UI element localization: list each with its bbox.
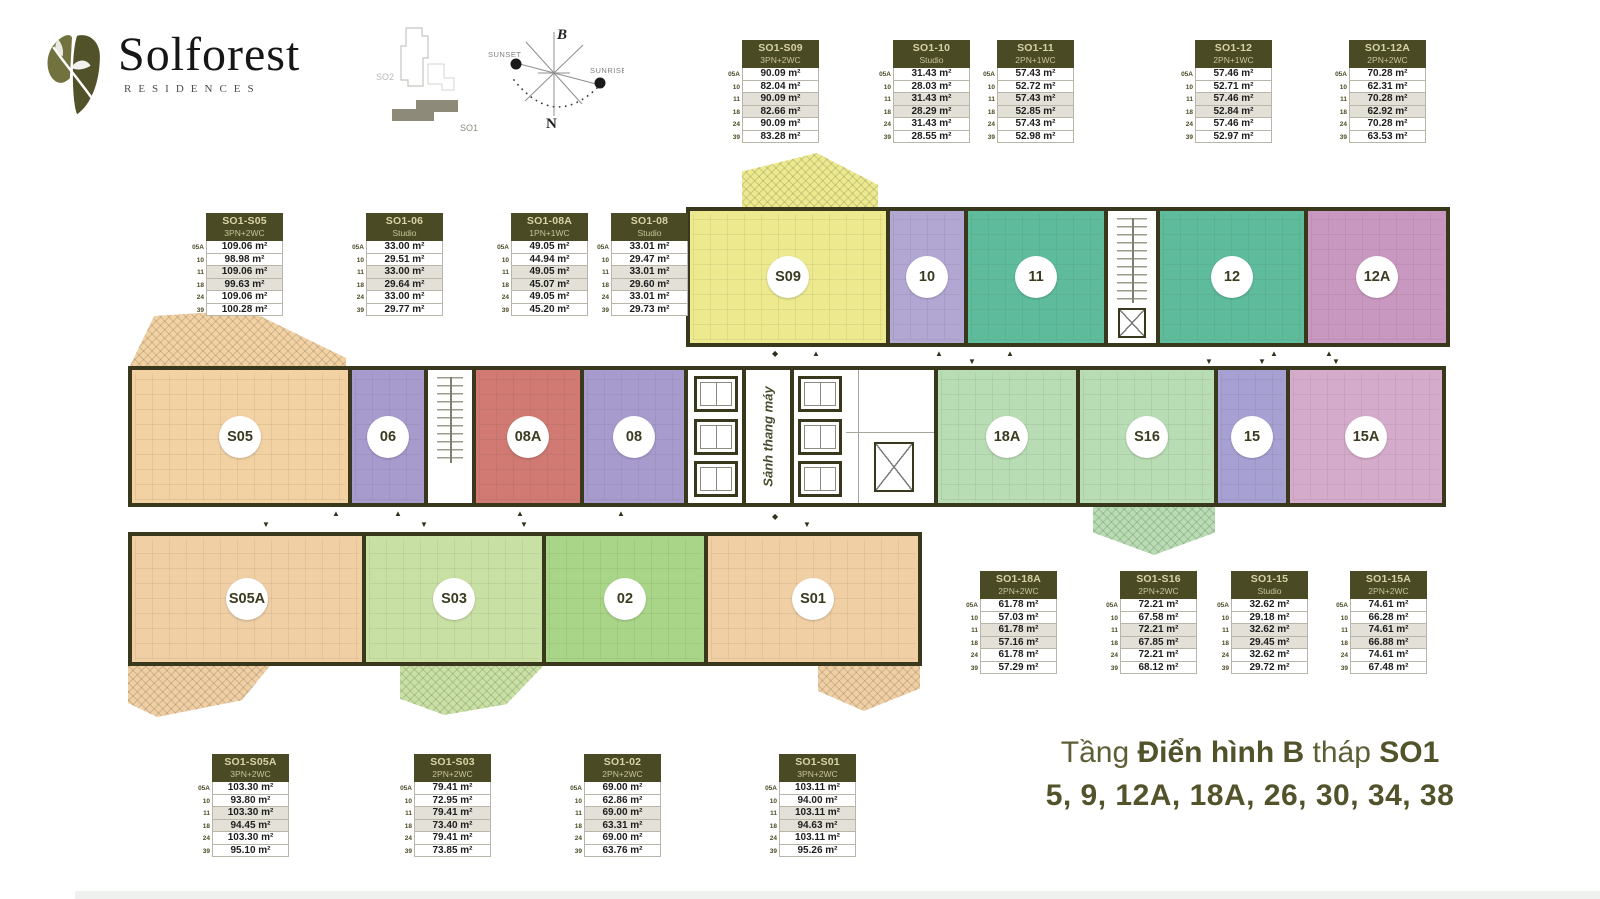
area-value: 74.61 m² [1350, 649, 1427, 662]
unit-s03: S03 [362, 536, 542, 662]
area-value: 93.80 m² [212, 795, 289, 808]
area-table-so1-s03: SO1-S032PN+2WC05A79.41 m²1072.95 m²1179.… [399, 754, 491, 857]
floor-label: 24 [496, 291, 511, 304]
table-row: 1829.60 m² [596, 279, 688, 292]
unit-label-08: 08 [613, 416, 655, 458]
table-header: SO1-S05A3PN+2WC [212, 754, 289, 782]
table-row: 1029.47 m² [596, 254, 688, 267]
area-value: 31.43 m² [893, 93, 970, 106]
area-value: 69.00 m² [584, 807, 661, 820]
area-value: 32.62 m² [1231, 599, 1308, 612]
area-value: 62.31 m² [1349, 81, 1426, 94]
table-row: 2469.00 m² [569, 832, 661, 845]
area-value: 52.85 m² [997, 106, 1074, 119]
table-header: SO1-10Studio [893, 40, 970, 68]
floor-label: 11 [569, 807, 584, 820]
unit-label-s09: S09 [767, 256, 809, 298]
table-row: 24103.30 m² [197, 832, 289, 845]
area-value: 63.53 m² [1349, 131, 1426, 144]
compass-south-label: N [546, 116, 557, 132]
table-row: 2479.41 m² [399, 832, 491, 845]
floor-label: 11 [596, 266, 611, 279]
table-unit-type: 2PN+2WC [584, 769, 661, 779]
table-unit-code: SO1-06 [366, 215, 443, 227]
floor-label: 39 [764, 845, 779, 858]
unit-12a: 12A [1304, 211, 1446, 343]
table-row: 05A33.00 m² [351, 241, 443, 254]
table-row: 24103.11 m² [764, 832, 856, 845]
table-row: 3952.98 m² [982, 131, 1074, 144]
unit-label-12: 12 [1211, 256, 1253, 298]
area-value: 67.48 m² [1350, 662, 1427, 675]
floor-label: 10 [569, 795, 584, 808]
floor-label: 11 [1105, 624, 1120, 637]
floor-label: 18 [1180, 106, 1195, 119]
table-row: 05A57.46 m² [1180, 68, 1272, 81]
area-value: 82.04 m² [742, 81, 819, 94]
floor-label: 39 [191, 304, 206, 317]
area-value: 90.09 m² [742, 118, 819, 131]
table-row: 05A74.61 m² [1335, 599, 1427, 612]
table-row: 05A32.62 m² [1216, 599, 1308, 612]
table-row: 1899.63 m² [191, 279, 283, 292]
floor-label: 39 [727, 131, 742, 144]
table-unit-type: 2PN+2WC [414, 769, 491, 779]
floor-label: 39 [351, 304, 366, 317]
site-map-so2-label: SO2 [376, 72, 394, 82]
unit-label-10: 10 [906, 256, 948, 298]
table-row: 1829.64 m² [351, 279, 443, 292]
floor-label: 24 [569, 832, 584, 845]
unit-12: 12 [1160, 211, 1304, 343]
area-value: 67.58 m² [1120, 612, 1197, 625]
solforest-logo-icon [42, 30, 104, 120]
area-table-so1-15: SO1-15Studio05A32.62 m²1029.18 m²1132.62… [1216, 571, 1308, 674]
table-row: 1133.01 m² [596, 266, 688, 279]
table-unit-type: 3PN+2WC [206, 228, 283, 238]
area-value: 62.86 m² [584, 795, 661, 808]
area-value: 69.00 m² [584, 832, 661, 845]
area-value: 73.85 m² [414, 845, 491, 858]
floor-label: 24 [878, 118, 893, 131]
table-row: 1873.40 m² [399, 820, 491, 833]
area-table-so1-08a: SO1-08A1PN+1WC05A49.05 m²1044.94 m²1149.… [496, 213, 588, 316]
area-value: 32.62 m² [1231, 624, 1308, 637]
area-value: 29.60 m² [611, 279, 688, 292]
entrance-arrow-up-icon: ▲ [394, 510, 402, 518]
floor-label: 10 [1180, 81, 1195, 94]
area-value: 52.84 m² [1195, 106, 1272, 119]
table-row: 1029.51 m² [351, 254, 443, 267]
unit-label-s05: S05 [219, 416, 261, 458]
table-row: 3963.76 m² [569, 845, 661, 858]
table-row: 11103.30 m² [197, 807, 289, 820]
table-row: 1852.85 m² [982, 106, 1074, 119]
floor-label: 10 [351, 254, 366, 267]
area-table-so1-s05: SO1-S053PN+2WC05A109.06 m²1098.98 m²1110… [191, 213, 283, 316]
area-value: 32.62 m² [1231, 649, 1308, 662]
area-value: 72.21 m² [1120, 649, 1197, 662]
table-unit-type: 2PN+1WC [997, 55, 1074, 65]
unit-label-02: 02 [604, 578, 646, 620]
table-row: 3983.28 m² [727, 131, 819, 144]
area-value: 103.30 m² [212, 832, 289, 845]
table-row: 3973.85 m² [399, 845, 491, 858]
table-row: 3963.53 m² [1334, 131, 1426, 144]
table-row: 2449.05 m² [496, 291, 588, 304]
lobby-label: Sảnh thang máy [761, 386, 776, 486]
table-unit-code: SO1-08A [511, 215, 588, 227]
entrance-arrow-up-icon: ▲ [812, 350, 820, 358]
floor-label: 18 [982, 106, 997, 119]
table-row: 24109.06 m² [191, 291, 283, 304]
table-row: 1131.43 m² [878, 93, 970, 106]
area-value: 70.28 m² [1349, 68, 1426, 81]
table-unit-code: SO1-15A [1350, 573, 1427, 585]
table-row: 1845.07 m² [496, 279, 588, 292]
floor-label: 18 [878, 106, 893, 119]
unit-label-s05a: S05A [226, 578, 268, 620]
floor-label: 05A [596, 241, 611, 254]
floor-label: 05A [965, 599, 980, 612]
floor-label: 39 [1180, 131, 1195, 144]
table-header: SO1-022PN+2WC [584, 754, 661, 782]
footer-word-tang: Tầng [1061, 736, 1129, 769]
compass-sunset-label: SUNSET [488, 50, 521, 59]
compass-arc [514, 80, 598, 107]
floor-label: 11 [1180, 93, 1195, 106]
table-row: 2433.01 m² [596, 291, 688, 304]
unit-15a: 15A [1286, 370, 1442, 503]
table-row: 3929.77 m² [351, 304, 443, 317]
floor-label: 11 [727, 93, 742, 106]
area-value: 98.98 m² [206, 254, 283, 267]
area-value: 69.00 m² [584, 782, 661, 795]
table-row: 2474.61 m² [1335, 649, 1427, 662]
area-value: 29.18 m² [1231, 612, 1308, 625]
table-row: 1062.31 m² [1334, 81, 1426, 94]
table-unit-code: SO1-S05 [206, 215, 283, 227]
footer-caption: Tầng Điển hình B tháp SO1 5, 9, 12A, 18A… [1030, 736, 1470, 813]
entrance-arrow-down-icon: ▼ [420, 521, 428, 529]
area-value: 52.71 m² [1195, 81, 1272, 94]
elevator-lobby: Sảnh thang máy [742, 370, 794, 503]
table-row: 1133.00 m² [351, 266, 443, 279]
unit-10: 10 [886, 211, 964, 343]
table-row: 1082.04 m² [727, 81, 819, 94]
area-value: 52.97 m² [1195, 131, 1272, 144]
table-row: 11109.06 m² [191, 266, 283, 279]
table-unit-type: Studio [1231, 586, 1308, 596]
balcony-s05a [128, 661, 274, 717]
area-value: 103.30 m² [212, 782, 289, 795]
floor-label: 24 [982, 118, 997, 131]
area-value: 103.11 m² [779, 782, 856, 795]
unit-s05: S05 [132, 370, 348, 503]
area-value: 103.30 m² [212, 807, 289, 820]
table-header: SO1-S032PN+2WC [414, 754, 491, 782]
floor-label: 11 [191, 266, 206, 279]
lobby-passage-icon: ◆ [772, 350, 778, 358]
area-value: 57.43 m² [997, 118, 1074, 131]
table-row: 1882.66 m² [727, 106, 819, 119]
unit-06: 06 [348, 370, 424, 503]
table-row: 1863.31 m² [569, 820, 661, 833]
table-header: SO1-08A1PN+1WC [511, 213, 588, 241]
balcony-s09 [742, 153, 878, 211]
table-row: 1052.71 m² [1180, 81, 1272, 94]
table-row: 3929.73 m² [596, 304, 688, 317]
floor-label: 11 [399, 807, 414, 820]
unit-s16: S16 [1076, 370, 1214, 503]
table-unit-code: SO1-S16 [1120, 573, 1197, 585]
unit-label-18a: 18A [986, 416, 1028, 458]
floor-label: 11 [1334, 93, 1349, 106]
footer-word-so1: SO1 [1379, 736, 1439, 769]
elevator-icon [798, 376, 842, 412]
table-header: SO1-15A2PN+2WC [1350, 571, 1427, 599]
floor-label: 05A [1216, 599, 1231, 612]
area-value: 49.05 m² [511, 291, 588, 304]
floor-label: 24 [596, 291, 611, 304]
area-table-so1-10: SO1-10Studio05A31.43 m²1028.03 m²1131.43… [878, 40, 970, 143]
entrance-arrow-down-icon: ▼ [1332, 358, 1340, 366]
area-table-so1-s01: SO1-S013PN+2WC05A103.11 m²1094.00 m²1110… [764, 754, 856, 857]
table-row: 2461.78 m² [965, 649, 1057, 662]
area-value: 57.03 m² [980, 612, 1057, 625]
table-row: 2472.21 m² [1105, 649, 1197, 662]
table-row: 3968.12 m² [1105, 662, 1197, 675]
elevator-bank-left [694, 376, 738, 497]
floor-label: 39 [399, 845, 414, 858]
table-unit-code: SO1-S09 [742, 42, 819, 54]
footer-word-typeb: Điển hình B [1137, 736, 1304, 769]
table-header: SO1-122PN+1WC [1195, 40, 1272, 68]
sunset-dot [511, 59, 522, 70]
footer-line-1: Tầng Điển hình B tháp SO1 [1030, 736, 1470, 770]
floor-label: 39 [1334, 131, 1349, 144]
middle-wing: S05 06 08A 08 Sảnh thang máy 18A S16 1 [128, 366, 1446, 507]
floor-label: 24 [197, 832, 212, 845]
table-header: SO1-S093PN+2WC [742, 40, 819, 68]
area-value: 29.45 m² [1231, 637, 1308, 650]
compass-north-label: B [556, 27, 567, 43]
area-value: 82.66 m² [742, 106, 819, 119]
area-value: 73.40 m² [414, 820, 491, 833]
stairwell-middle [424, 370, 476, 503]
table-unit-code: SO1-11 [997, 42, 1074, 54]
table-row: 05A90.09 m² [727, 68, 819, 81]
table-row: 1093.80 m² [197, 795, 289, 808]
floor-label: 39 [496, 304, 511, 317]
floor-label: 05A [496, 241, 511, 254]
area-value: 33.01 m² [611, 291, 688, 304]
area-value: 95.10 m² [212, 845, 289, 858]
area-value: 68.12 m² [1120, 662, 1197, 675]
entrance-arrow-down-icon: ▼ [1205, 358, 1213, 366]
floor-label: 18 [569, 820, 584, 833]
brand-block: Solforest RESIDENCES [42, 30, 300, 120]
area-value: 74.61 m² [1350, 599, 1427, 612]
unit-s01: S01 [704, 536, 918, 662]
floor-label: 11 [878, 93, 893, 106]
area-table-so1-s05a: SO1-S05A3PN+2WC05A103.30 m²1093.80 m²111… [197, 754, 289, 857]
table-unit-type: Studio [611, 228, 688, 238]
unit-label-11: 11 [1015, 256, 1057, 298]
table-row: 1857.16 m² [965, 637, 1057, 650]
unit-s05a: S05A [132, 536, 362, 662]
table-row: 1094.00 m² [764, 795, 856, 808]
area-value: 79.41 m² [414, 832, 491, 845]
floor-label: 18 [596, 279, 611, 292]
floor-label: 11 [197, 807, 212, 820]
area-value: 79.41 m² [414, 807, 491, 820]
floor-label: 24 [1334, 118, 1349, 131]
floor-label: 18 [1216, 637, 1231, 650]
table-row: 05A103.30 m² [197, 782, 289, 795]
floor-label: 10 [191, 254, 206, 267]
table-row: 1157.43 m² [982, 93, 1074, 106]
table-header: SO1-08Studio [611, 213, 688, 241]
balcony-s16 [1093, 505, 1215, 555]
entrance-arrow-down-icon: ▼ [968, 358, 976, 366]
area-value: 57.46 m² [1195, 118, 1272, 131]
area-value: 94.63 m² [779, 820, 856, 833]
unit-18a: 18A [934, 370, 1076, 503]
area-value: 28.03 m² [893, 81, 970, 94]
podium-outline [428, 64, 454, 90]
area-value: 57.46 m² [1195, 93, 1272, 106]
entrance-arrow-up-icon: ▲ [617, 510, 625, 518]
unit-s09: S09 [690, 211, 886, 343]
balcony-s05 [128, 310, 346, 370]
table-unit-type: 2PN+2WC [1349, 55, 1426, 65]
table-header: SO1-112PN+1WC [997, 40, 1074, 68]
table-row: 3928.55 m² [878, 131, 970, 144]
floor-label: 18 [1334, 106, 1349, 119]
area-table-so1-18a: SO1-18A2PN+2WC05A61.78 m²1057.03 m²1161.… [965, 571, 1057, 674]
lobby-passage-icon: ◆ [772, 513, 778, 521]
area-value: 29.64 m² [366, 279, 443, 292]
area-value: 70.28 m² [1349, 118, 1426, 131]
table-row: 1829.45 m² [1216, 637, 1308, 650]
area-value: 79.41 m² [414, 782, 491, 795]
table-unit-type: 2PN+1WC [1195, 55, 1272, 65]
area-value: 49.05 m² [511, 266, 588, 279]
site-map-so1-label: SO1 [460, 123, 478, 133]
elevator-icon [798, 419, 842, 455]
table-row: 2457.43 m² [982, 118, 1074, 131]
table-row: 1161.78 m² [965, 624, 1057, 637]
footer-word-thap: tháp [1312, 736, 1370, 769]
table-row: 1866.88 m² [1335, 637, 1427, 650]
floor-label: 11 [965, 624, 980, 637]
floor-label: 39 [1335, 662, 1350, 675]
area-value: 90.09 m² [742, 93, 819, 106]
area-value: 100.28 m² [206, 304, 283, 317]
area-table-so1-s09: SO1-S093PN+2WC05A90.09 m²1082.04 m²1190.… [727, 40, 819, 143]
floor-label: 24 [399, 832, 414, 845]
area-value: 45.07 m² [511, 279, 588, 292]
table-row: 3952.97 m² [1180, 131, 1272, 144]
floor-label: 05A [764, 782, 779, 795]
table-unit-type: 2PN+2WC [980, 586, 1057, 596]
floor-label: 11 [764, 807, 779, 820]
floor-label: 39 [596, 304, 611, 317]
table-unit-code: SO1-18A [980, 573, 1057, 585]
floor-label: 05A [1334, 68, 1349, 81]
corridor-line [858, 370, 859, 503]
table-row: 1072.95 m² [399, 795, 491, 808]
area-value: 66.88 m² [1350, 637, 1427, 650]
area-value: 31.43 m² [893, 68, 970, 81]
area-table-so1-02: SO1-022PN+2WC05A69.00 m²1062.86 m²1169.0… [569, 754, 661, 857]
table-unit-type: 2PN+2WC [1350, 586, 1427, 596]
table-row: 05A49.05 m² [496, 241, 588, 254]
area-value: 83.28 m² [742, 131, 819, 144]
brand-tagline: RESIDENCES [124, 83, 300, 95]
table-row: 3995.10 m² [197, 845, 289, 858]
floor-label: 18 [351, 279, 366, 292]
table-header: SO1-S053PN+2WC [206, 213, 283, 241]
floor-label: 11 [1335, 624, 1350, 637]
area-value: 57.43 m² [997, 68, 1074, 81]
area-value: 72.21 m² [1120, 624, 1197, 637]
floor-label: 18 [1105, 637, 1120, 650]
tower-so1-shape [392, 100, 458, 121]
area-value: 99.63 m² [206, 279, 283, 292]
floor-label: 05A [191, 241, 206, 254]
table-row: 1062.86 m² [569, 795, 661, 808]
table-row: 3995.26 m² [764, 845, 856, 858]
area-table-so1-06: SO1-06Studio05A33.00 m²1029.51 m²1133.00… [351, 213, 443, 316]
floor-label: 10 [1334, 81, 1349, 94]
elevator-icon [798, 461, 842, 497]
floor-label: 18 [727, 106, 742, 119]
table-row: 2457.46 m² [1180, 118, 1272, 131]
table-row: 05A33.01 m² [596, 241, 688, 254]
floor-label: 05A [982, 68, 997, 81]
floor-label: 39 [965, 662, 980, 675]
floor-label: 10 [1216, 612, 1231, 625]
table-row: 1852.84 m² [1180, 106, 1272, 119]
area-value: 67.85 m² [1120, 637, 1197, 650]
table-row: 05A72.21 m² [1105, 599, 1197, 612]
floor-label: 10 [197, 795, 212, 808]
floor-label: 11 [982, 93, 997, 106]
table-row: 05A57.43 m² [982, 68, 1074, 81]
compass-sunrise-label: SUNRISE [590, 66, 624, 75]
entrance-arrow-up-icon: ▲ [332, 510, 340, 518]
table-row: 1174.61 m² [1335, 624, 1427, 637]
area-value: 28.55 m² [893, 131, 970, 144]
unit-02: 02 [542, 536, 704, 662]
lower-wing: S05A S03 02 S01 [128, 532, 922, 666]
floor-label: 10 [764, 795, 779, 808]
table-row: 05A79.41 m² [399, 782, 491, 795]
table-header: SO1-15Studio [1231, 571, 1308, 599]
table-row: 05A70.28 m² [1334, 68, 1426, 81]
area-value: 103.11 m² [779, 807, 856, 820]
table-row: 3929.72 m² [1216, 662, 1308, 675]
area-value: 109.06 m² [206, 266, 283, 279]
table-row: 3957.29 m² [965, 662, 1057, 675]
table-row: 11103.11 m² [764, 807, 856, 820]
table-unit-code: SO1-15 [1231, 573, 1308, 585]
floor-label: 18 [399, 820, 414, 833]
floor-label: 10 [1105, 612, 1120, 625]
unit-label-08a: 08A [507, 416, 549, 458]
